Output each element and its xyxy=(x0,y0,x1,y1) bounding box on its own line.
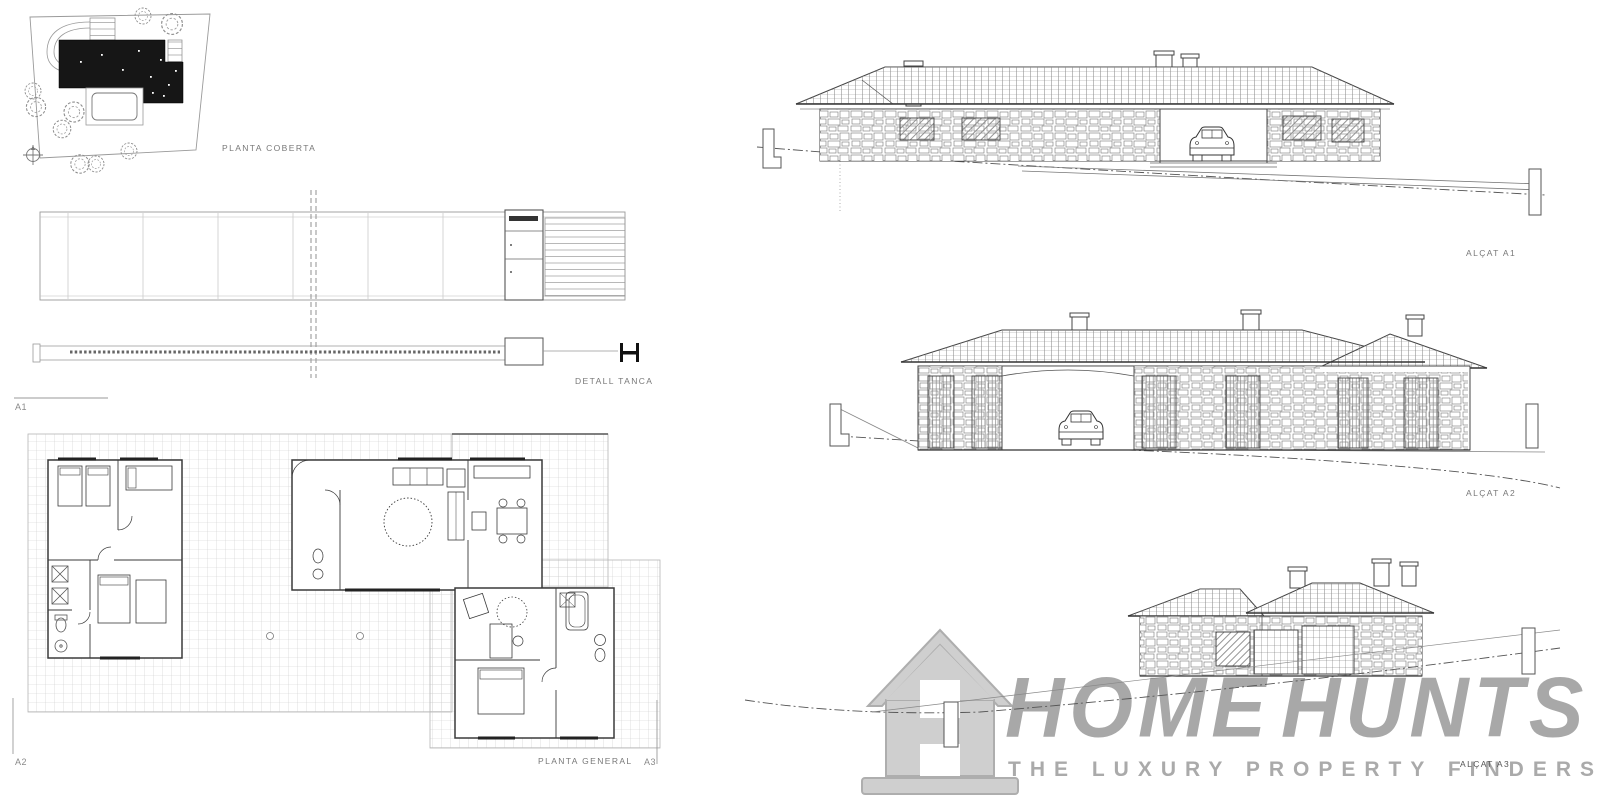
section-marker-a1: A1 xyxy=(15,402,27,412)
label-elevation-a3: ALÇAT A3 xyxy=(1460,759,1510,769)
label-floor-plan: PLANTA GENERAL xyxy=(538,756,633,766)
label-fence-detail: DETALL TANCA xyxy=(575,376,653,386)
overlay-lines-layer xyxy=(0,0,1600,808)
label-roof-plan: PLANTA COBERTA xyxy=(222,143,316,153)
label-elevation-a1: ALÇAT A1 xyxy=(1466,248,1516,258)
label-elevation-a2: ALÇAT A2 xyxy=(1466,488,1516,498)
section-marker-a3: A3 xyxy=(644,757,656,767)
architectural-drawing-sheet: HOME HUNTS THE LUXURY PROPERTY FINDERS P… xyxy=(0,0,1600,808)
section-marker-a2: A2 xyxy=(15,757,27,767)
